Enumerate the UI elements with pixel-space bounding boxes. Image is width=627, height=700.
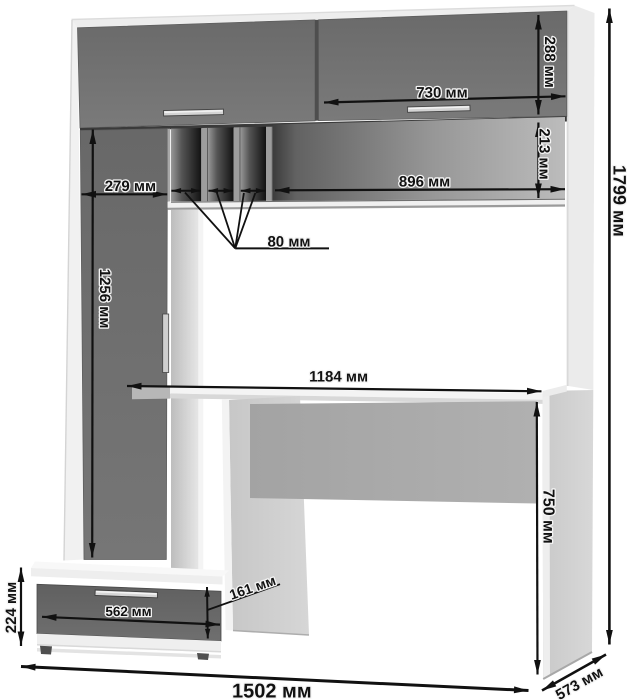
svg-text:1184 мм: 1184 мм [309,369,368,386]
svg-text:730 мм: 730 мм [416,84,467,101]
svg-text:896 мм: 896 мм [399,173,450,190]
svg-text:750 мм: 750 мм [540,489,557,544]
svg-text:279 мм: 279 мм [105,178,156,195]
svg-text:1256 мм: 1256 мм [96,269,113,329]
svg-text:224 мм: 224 мм [3,582,20,633]
svg-text:213 мм: 213 мм [536,128,553,179]
svg-text:288 мм: 288 мм [541,37,558,88]
svg-text:562 мм: 562 мм [105,604,151,619]
svg-text:1502 мм: 1502 мм [232,681,312,700]
svg-text:80 мм: 80 мм [267,233,310,250]
svg-text:1799 мм: 1799 мм [609,165,627,237]
